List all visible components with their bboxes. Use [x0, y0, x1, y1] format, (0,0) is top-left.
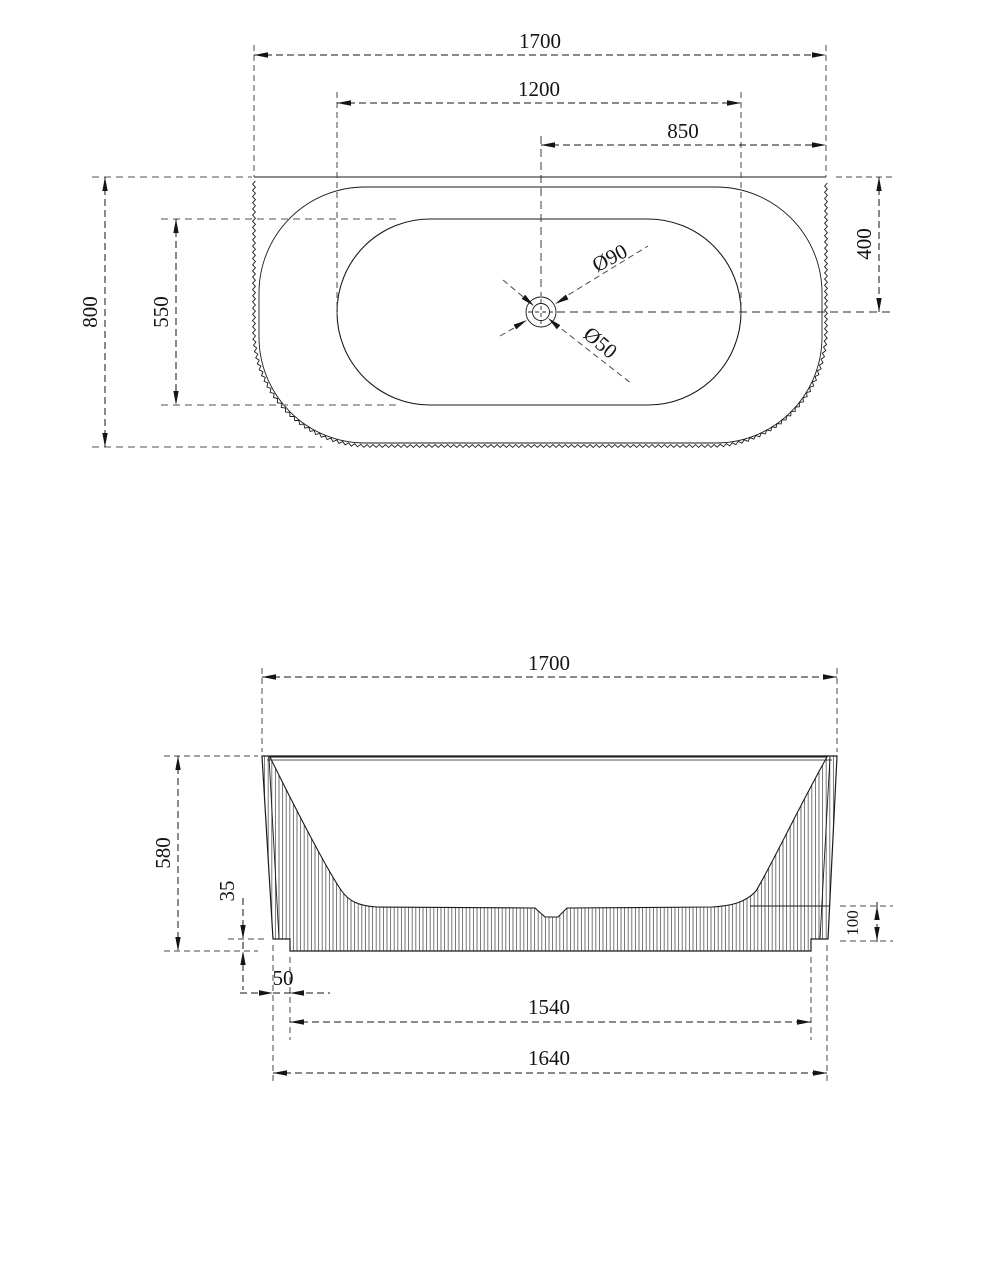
arrowhead — [874, 906, 879, 920]
dim-label-580: 580 — [151, 837, 175, 869]
arrowhead — [290, 990, 304, 995]
arrowhead — [173, 219, 178, 233]
dim-label-drain-inner: Ø50 — [579, 322, 622, 364]
arrowhead — [102, 177, 107, 191]
dim-label-850: 850 — [667, 119, 699, 143]
bathtub-technical-drawing: 1700 1200 850 800 550 400 Ø90 Ø50 — [0, 0, 1002, 1285]
dim-label-1540: 1540 — [528, 995, 570, 1019]
arrowhead — [273, 1070, 287, 1075]
arrowhead — [812, 142, 826, 147]
arrowhead — [254, 52, 268, 57]
top-view-dimension-lines — [105, 55, 879, 447]
arrowhead — [175, 756, 180, 770]
arrowhead — [514, 318, 529, 330]
dim-label-1640: 1640 — [528, 1046, 570, 1070]
top-view-extension-lines — [92, 45, 893, 447]
drawing-sheet: 1700 1200 850 800 550 400 Ø90 Ø50 — [0, 0, 1002, 1285]
arrowhead — [823, 674, 837, 679]
arrowhead — [874, 927, 879, 941]
arrowhead — [259, 990, 273, 995]
arrowhead — [812, 52, 826, 57]
arrowhead — [337, 100, 351, 105]
dim-label-drain-outer: Ø90 — [588, 239, 631, 277]
dim-label-550: 550 — [149, 296, 173, 328]
dim-label-400: 400 — [852, 228, 876, 260]
dim-label-800: 800 — [78, 296, 102, 328]
dim-label-side-1700: 1700 — [528, 651, 570, 675]
arrowhead — [240, 951, 245, 965]
arrowhead — [522, 295, 536, 308]
arrowhead — [797, 1019, 811, 1024]
arrowhead — [240, 925, 245, 939]
dim-label-top-1700: 1700 — [519, 29, 561, 53]
arrowhead — [554, 295, 569, 307]
dim-label-100: 100 — [843, 910, 862, 936]
arrowhead — [876, 177, 881, 191]
arrowhead — [813, 1070, 827, 1075]
drain — [526, 297, 556, 327]
arrowhead — [541, 142, 555, 147]
bowl-profile — [270, 757, 827, 917]
dim-label-1200: 1200 — [518, 77, 560, 101]
dim-label-50: 50 — [273, 966, 294, 990]
arrowhead — [102, 433, 107, 447]
arrowhead — [173, 391, 178, 405]
side-view: 1700 580 35 100 50 1540 1640 — [151, 651, 893, 1085]
arrowhead — [262, 674, 276, 679]
arrowhead — [546, 316, 560, 329]
drain-leader-lines — [500, 246, 648, 384]
dim-label-35: 35 — [215, 881, 239, 902]
arrowhead — [876, 298, 881, 312]
arrowhead — [290, 1019, 304, 1024]
arrowhead — [175, 937, 180, 951]
arrowhead — [727, 100, 741, 105]
top-view: 1700 1200 850 800 550 400 Ø90 Ø50 — [78, 29, 893, 447]
